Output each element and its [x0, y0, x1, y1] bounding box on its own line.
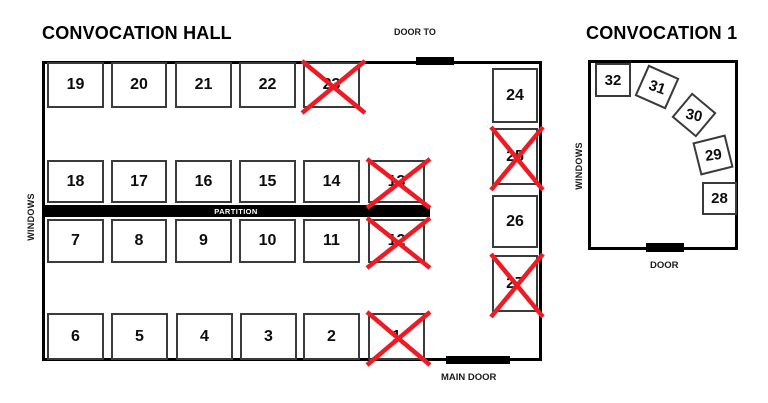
booth-6: 6	[47, 313, 104, 360]
booth-number: 28	[711, 191, 728, 206]
booth-number: 9	[199, 233, 208, 249]
booth-22: 22	[239, 62, 296, 108]
partition-bar: PARTITION	[42, 205, 430, 217]
floor-plan: CONVOCATION HALL DOOR TO CONVOCATION 1 P…	[0, 0, 768, 403]
booth-number: 11	[323, 233, 340, 249]
booth-number: 3	[264, 329, 273, 345]
partition-label: PARTITION	[214, 207, 257, 216]
booth-19: 19	[47, 62, 104, 108]
booth-3: 3	[240, 313, 297, 360]
booth-number: 19	[67, 77, 85, 93]
booth-number: 6	[71, 329, 80, 345]
main-door-label: MAIN DOOR	[441, 372, 496, 383]
booth-number: 13	[388, 174, 406, 190]
booth-12: 12	[368, 219, 425, 263]
top-door-bar	[416, 57, 454, 65]
booth-9: 9	[175, 219, 232, 263]
booth-number: 2	[327, 329, 336, 345]
room1-windows-label: WINDOWS	[574, 142, 584, 190]
booth-14: 14	[303, 160, 360, 203]
booth-number: 26	[506, 214, 524, 230]
booth-number: 18	[67, 174, 85, 190]
booth-32: 32	[595, 63, 631, 97]
booth-28: 28	[702, 182, 737, 215]
hall-windows-label: WINDOWS	[26, 193, 36, 241]
booth-2: 2	[303, 313, 360, 360]
main-door-bar	[446, 356, 510, 364]
booth-18: 18	[47, 160, 104, 203]
booth-number: 23	[323, 77, 341, 93]
booth-number: 21	[195, 77, 213, 93]
booth-25: 25	[492, 128, 538, 185]
booth-number: 7	[71, 233, 80, 249]
booth-13: 13	[368, 160, 425, 203]
booth-number: 17	[130, 174, 148, 190]
booth-26: 26	[492, 195, 538, 248]
booth-number: 10	[259, 233, 277, 249]
booth-number: 32	[605, 73, 622, 88]
booth-number: 27	[506, 276, 524, 292]
booth-27: 27	[492, 255, 538, 312]
booth-number: 24	[506, 88, 524, 104]
booth-20: 20	[111, 62, 167, 108]
booth-5: 5	[111, 313, 168, 360]
booth-number: 15	[259, 174, 277, 190]
booth-21: 21	[175, 62, 232, 108]
booth-number: 29	[704, 146, 723, 163]
booth-15: 15	[239, 160, 296, 203]
door-to-label: DOOR TO	[394, 27, 436, 37]
booth-24: 24	[492, 68, 538, 123]
booth-23: 23	[303, 62, 360, 108]
booth-number: 20	[130, 77, 148, 93]
booth-11: 11	[303, 219, 360, 263]
booth-number: 14	[323, 174, 341, 190]
booth-17: 17	[111, 160, 167, 203]
hall-title: CONVOCATION HALL	[42, 23, 232, 44]
booth-number: 22	[259, 77, 277, 93]
booth-number: 1	[392, 329, 401, 345]
booth-number: 8	[135, 233, 144, 249]
room1-door-label: DOOR	[650, 260, 679, 271]
booth-10: 10	[239, 219, 296, 263]
booth-4: 4	[176, 313, 233, 360]
booth-8: 8	[111, 219, 167, 263]
room1-title: CONVOCATION 1	[586, 23, 737, 44]
booth-number: 12	[388, 233, 406, 249]
booth-number: 16	[195, 174, 213, 190]
booth-number: 31	[647, 77, 668, 97]
booth-number: 25	[506, 149, 524, 165]
booth-16: 16	[175, 160, 232, 203]
booth-1: 1	[368, 313, 425, 360]
room1-door-bar	[646, 243, 684, 252]
booth-7: 7	[47, 219, 104, 263]
booth-number: 30	[684, 106, 703, 124]
booth-number: 5	[135, 329, 144, 345]
booth-number: 4	[200, 329, 209, 345]
